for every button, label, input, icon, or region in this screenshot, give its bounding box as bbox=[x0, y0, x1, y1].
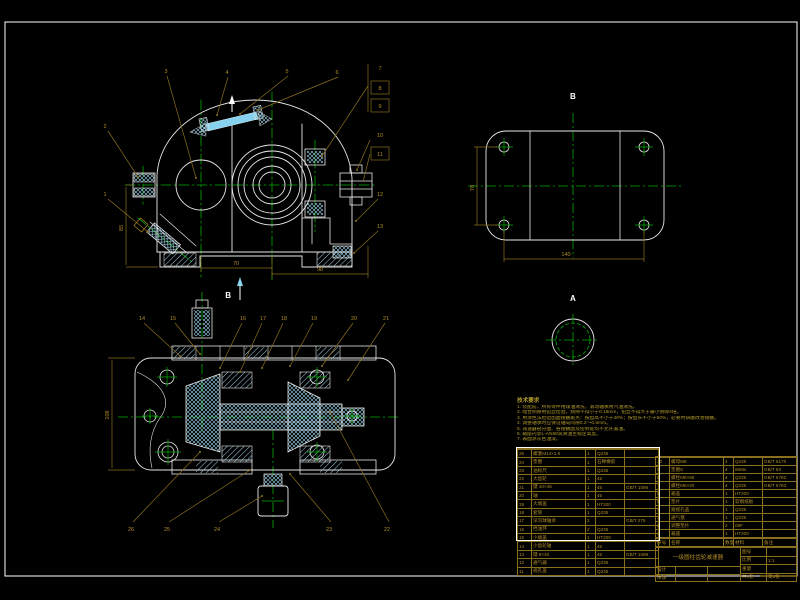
cell-material: 45 bbox=[595, 475, 624, 482]
cell-remark bbox=[624, 559, 658, 566]
sign-value bbox=[708, 575, 740, 582]
cell-name: 箱座 bbox=[669, 530, 723, 537]
cell-qty: 1 bbox=[723, 490, 733, 497]
front-callouts: 1 2 3 4 5 6 7 8 9 10 11 12 13 bbox=[103, 66, 383, 230]
header-no: 序号 bbox=[656, 539, 669, 546]
dim-108: 108 bbox=[105, 410, 111, 419]
cell-name: 视孔盖 bbox=[531, 568, 585, 575]
dim-70: 70 bbox=[233, 261, 239, 267]
table-row: 8 螺栓M8×65 4 Q235 GB/T 5782 bbox=[656, 473, 796, 481]
cell-material: Q235 bbox=[595, 509, 624, 516]
cell-qty: 1 bbox=[585, 475, 595, 482]
cell-name: 调整垫片 bbox=[669, 522, 723, 529]
cell-name: 小齿轮轴 bbox=[531, 542, 585, 549]
callout-2: 2 bbox=[103, 124, 106, 130]
cell-name: 螺栓M8×65 bbox=[669, 474, 723, 481]
cell-remark: GB/T 5783 bbox=[762, 482, 796, 489]
field-value: 1:1 bbox=[767, 557, 796, 565]
cell-remark: GB/T 6170 bbox=[762, 458, 796, 465]
note-line: 7. 表面涂灰色油漆。 bbox=[517, 437, 795, 442]
cell-qty: 1 bbox=[585, 534, 595, 541]
cell-material: 石棉橡胶 bbox=[595, 458, 624, 465]
callout-16: 16 bbox=[240, 316, 246, 322]
table-row: 12 通气器 1 Q235 bbox=[518, 558, 658, 566]
cell-no: 14 bbox=[518, 542, 531, 549]
sign-value bbox=[708, 567, 740, 574]
cell-no: 20 bbox=[518, 492, 531, 499]
cell-material: 08F bbox=[733, 522, 762, 529]
cell-remark bbox=[624, 509, 658, 516]
a-view-label: A bbox=[570, 294, 576, 303]
cell-qty: 1 bbox=[723, 506, 733, 513]
cell-qty: 1 bbox=[585, 568, 595, 575]
cell-remark bbox=[762, 506, 796, 513]
drain-plug bbox=[134, 214, 196, 254]
cell-remark bbox=[762, 490, 796, 497]
cell-remark: GB/T 5782 bbox=[762, 474, 796, 481]
bom-header-row: 序号 名称 数量 材料 备注 bbox=[655, 538, 797, 547]
callout-12: 12 bbox=[377, 192, 383, 198]
callout-26: 26 bbox=[128, 527, 134, 533]
cell-remark bbox=[624, 475, 658, 482]
callout-1: 1 bbox=[103, 192, 106, 198]
callout-19: 19 bbox=[311, 316, 317, 322]
cell-remark bbox=[624, 534, 658, 541]
cell-remark bbox=[624, 492, 658, 499]
cell-remark bbox=[762, 522, 796, 529]
callout-18: 18 bbox=[281, 316, 287, 322]
cell-no: 12 bbox=[518, 559, 531, 566]
table-row: 25 螺塞M14×1.5 1 Q235 bbox=[518, 449, 658, 457]
cell-qty: 2 bbox=[585, 526, 595, 533]
callout-23: 23 bbox=[326, 527, 332, 533]
table-row: 11 视孔盖 1 Q235 bbox=[518, 567, 658, 575]
cell-material: 45 bbox=[595, 542, 624, 549]
cell-no: 3 bbox=[656, 514, 669, 521]
cell-material: 45 bbox=[595, 551, 624, 558]
table-row: 21 键 10×45 1 45 GB/T 1096 bbox=[518, 483, 658, 491]
cell-no: 16 bbox=[518, 526, 531, 533]
field-scale: 比例 1:1 bbox=[741, 557, 796, 566]
cell-name: 轴 bbox=[531, 492, 585, 499]
title-block: 一级圆柱齿轮减速器 设计 审核 图号 比例 1:1 重量 共1张 第1张 bbox=[655, 547, 797, 582]
cell-name: 挡油环 bbox=[531, 526, 585, 533]
cell-qty: 1 bbox=[585, 551, 595, 558]
drawing-title: 一级圆柱齿轮减速器 bbox=[656, 548, 740, 567]
table-row: 24 垫圈 1 石棉橡胶 bbox=[518, 457, 658, 465]
sign-row-design: 设计 bbox=[656, 567, 740, 575]
callout-24: 24 bbox=[214, 527, 220, 533]
sign-value bbox=[676, 567, 708, 574]
field-value bbox=[767, 548, 796, 556]
table-row: 9 垫圈8 4 65Mn GB/T 93 bbox=[656, 465, 796, 473]
callout-17: 17 bbox=[260, 316, 266, 322]
cell-no: 5 bbox=[656, 498, 669, 505]
field-weight: 重量 bbox=[741, 565, 796, 574]
table-row: 15 小端盖 1 HT200 bbox=[518, 533, 658, 541]
callout-9: 9 bbox=[378, 104, 381, 110]
cell-no: 2 bbox=[656, 522, 669, 529]
callout-5: 5 bbox=[285, 69, 288, 75]
cell-no: 7 bbox=[656, 482, 669, 489]
cell-name: 键 8×40 bbox=[531, 551, 585, 558]
cell-no: 1 bbox=[656, 530, 669, 537]
cell-material: Q235 bbox=[733, 506, 762, 513]
callout-8: 8 bbox=[378, 86, 381, 92]
cell-qty: 1 bbox=[723, 530, 733, 537]
table-row: 13 键 8×40 1 45 GB/T 1096 bbox=[518, 550, 658, 558]
dim-140: 140 bbox=[561, 252, 570, 258]
callout-21: 21 bbox=[383, 316, 389, 322]
cell-no: 25 bbox=[518, 450, 531, 457]
cell-material: Q235 bbox=[595, 568, 624, 575]
cell-name: 螺塞M14×1.5 bbox=[531, 450, 585, 457]
callout-15: 15 bbox=[170, 316, 176, 322]
table-row: 17 深沟球轴承 2 GB/T 276 bbox=[518, 516, 658, 524]
cell-qty: 1 bbox=[585, 500, 595, 507]
cad-canvas[interactable]: 1 2 3 4 5 6 7 8 9 10 11 12 13 70 98 85 B bbox=[0, 0, 800, 600]
header-material: 材料 bbox=[733, 539, 762, 546]
callout-3: 3 bbox=[164, 69, 167, 75]
cell-remark bbox=[624, 526, 658, 533]
arrow-b-icon bbox=[237, 277, 243, 286]
table-row: 14 小齿轮轴 1 45 bbox=[518, 541, 658, 549]
table-row: 16 挡油环 2 Q235 bbox=[518, 525, 658, 533]
cell-qty: 2 bbox=[585, 517, 595, 524]
cell-remark: GB/T 1096 bbox=[624, 551, 658, 558]
dim-98: 98 bbox=[317, 267, 323, 273]
view-front bbox=[125, 92, 377, 280]
cell-material: Q235 bbox=[595, 559, 624, 566]
cell-no: 23 bbox=[518, 467, 531, 474]
field-label: 重量 bbox=[741, 565, 767, 573]
cell-material: 软钢纸板 bbox=[733, 498, 762, 505]
cell-material: 45 bbox=[595, 492, 624, 499]
cell-material: Q235 bbox=[733, 474, 762, 481]
cell-name: 窥视孔盖 bbox=[669, 506, 723, 513]
table-row: 2 调整垫片 2 08F bbox=[656, 521, 796, 529]
sign-row-check: 审核 bbox=[656, 575, 740, 582]
cell-name: 垫片 bbox=[669, 498, 723, 505]
callout-10: 10 bbox=[377, 133, 383, 139]
gear-section bbox=[186, 374, 220, 452]
technical-notes: 技术要求 1. 装配前，所有零件用煤油清洗，滚动轴承用汽油清洗。 2. 啮合侧隙… bbox=[517, 396, 795, 443]
cell-remark bbox=[624, 542, 658, 549]
table-row: 1 箱座 1 HT200 bbox=[656, 529, 796, 537]
callout-13: 13 bbox=[377, 224, 383, 230]
table-row: 23 油标尺 1 Q235 bbox=[518, 466, 658, 474]
cell-no: 4 bbox=[656, 506, 669, 513]
callout-22: 22 bbox=[384, 527, 390, 533]
cell-material: HT200 bbox=[733, 530, 762, 537]
cell-qty: 2 bbox=[723, 522, 733, 529]
field-value bbox=[767, 565, 796, 573]
view-plate: 140 78 B bbox=[468, 92, 682, 262]
cell-remark bbox=[624, 450, 658, 457]
cell-material: 65Mn bbox=[733, 466, 762, 473]
cell-material: Q235 bbox=[733, 482, 762, 489]
cell-qty: 1 bbox=[585, 458, 595, 465]
cell-remark: GB/T 1096 bbox=[624, 484, 658, 491]
header-name: 名称 bbox=[669, 539, 723, 546]
table-row: 19 大端盖 1 HT200 bbox=[518, 499, 658, 507]
cell-material: HT200 bbox=[733, 490, 762, 497]
cell-qty: 1 bbox=[723, 514, 733, 521]
header-qty: 数量 bbox=[723, 539, 733, 546]
cell-no: 10 bbox=[656, 458, 669, 465]
cell-remark: GB/T 276 bbox=[624, 517, 658, 524]
cell-material: Q235 bbox=[595, 526, 624, 533]
cell-name: 套筒 bbox=[531, 509, 585, 516]
cell-remark bbox=[624, 467, 658, 474]
field-value: 第1张 bbox=[767, 574, 796, 582]
cell-no: 21 bbox=[518, 484, 531, 491]
cell-qty: 1 bbox=[585, 509, 595, 516]
table-row: 6 箱盖 1 HT200 bbox=[656, 489, 796, 497]
callout-6: 6 bbox=[335, 70, 338, 76]
section-arrow-label: B bbox=[225, 291, 231, 300]
callout-20: 20 bbox=[351, 316, 357, 322]
cell-name: 大端盖 bbox=[531, 500, 585, 507]
cell-name: 小端盖 bbox=[531, 534, 585, 541]
view-a: A bbox=[546, 294, 600, 367]
cell-qty: 4 bbox=[723, 474, 733, 481]
bom-table-right: 10 螺母M8 4 Q235 GB/T 6170 9 垫圈8 4 65Mn GB… bbox=[655, 456, 797, 538]
cell-name: 螺栓M6×20 bbox=[669, 482, 723, 489]
callout-7: 7 bbox=[378, 66, 381, 72]
cell-no: 18 bbox=[518, 509, 531, 516]
dim-78: 78 bbox=[470, 185, 476, 191]
field-sheets: 共1张 第1张 bbox=[741, 574, 796, 582]
cell-remark bbox=[624, 500, 658, 507]
dim-85: 85 bbox=[119, 225, 125, 231]
cell-name: 键 10×45 bbox=[531, 484, 585, 491]
cell-name: 通气器 bbox=[531, 559, 585, 566]
cell-no: 11 bbox=[518, 568, 531, 575]
callout-4: 4 bbox=[225, 70, 228, 76]
sign-label: 审核 bbox=[656, 575, 676, 582]
cell-material: 45 bbox=[595, 484, 624, 491]
cell-no: 8 bbox=[656, 474, 669, 481]
cell-remark bbox=[762, 498, 796, 505]
cell-name: 螺母M8 bbox=[669, 458, 723, 465]
table-row: 3 通气塞 1 Q235 bbox=[656, 513, 796, 521]
cell-remark: GB/T 93 bbox=[762, 466, 796, 473]
cell-qty: 1 bbox=[585, 484, 595, 491]
plate-view-label: B bbox=[570, 92, 576, 101]
cell-name: 垫圈8 bbox=[669, 466, 723, 473]
cell-no: 24 bbox=[518, 458, 531, 465]
table-row: 5 垫片 1 软钢纸板 bbox=[656, 497, 796, 505]
cell-no: 6 bbox=[656, 490, 669, 497]
cell-qty: 1 bbox=[585, 492, 595, 499]
callout-14: 14 bbox=[139, 316, 145, 322]
sign-value bbox=[676, 575, 708, 582]
cell-no: 13 bbox=[518, 551, 531, 558]
cell-name: 通气塞 bbox=[669, 514, 723, 521]
highlighted-bolt bbox=[190, 105, 272, 136]
table-row: 18 套筒 1 Q235 bbox=[518, 508, 658, 516]
notes-title: 技术要求 bbox=[517, 396, 795, 404]
cell-qty: 4 bbox=[723, 458, 733, 465]
cell-name: 箱盖 bbox=[669, 490, 723, 497]
cell-material bbox=[595, 517, 624, 524]
cell-name: 油标尺 bbox=[531, 467, 585, 474]
plate-dim-lines bbox=[474, 147, 644, 262]
cell-remark bbox=[762, 530, 796, 537]
field-label: 图号 bbox=[741, 548, 767, 556]
arrow-a-icon bbox=[229, 95, 235, 104]
field-label: 比例 bbox=[741, 557, 767, 565]
cell-material: HT200 bbox=[595, 534, 624, 541]
cell-material: Q235 bbox=[595, 467, 624, 474]
cell-remark bbox=[762, 514, 796, 521]
leader-dots bbox=[137, 109, 358, 254]
table-row: 4 窥视孔盖 1 Q235 bbox=[656, 505, 796, 513]
cell-remark bbox=[624, 568, 658, 575]
sign-label: 设计 bbox=[656, 567, 676, 574]
cell-qty: 1 bbox=[585, 542, 595, 549]
front-callout-leaders bbox=[108, 64, 389, 253]
cell-material: HT200 bbox=[595, 500, 624, 507]
field-drawing-no: 图号 bbox=[741, 548, 796, 557]
cell-qty: 1 bbox=[723, 498, 733, 505]
table-row: 7 螺栓M6×20 4 Q235 GB/T 5783 bbox=[656, 481, 796, 489]
table-row: 10 螺母M8 4 Q235 GB/T 6170 bbox=[656, 457, 796, 465]
cell-no: 9 bbox=[656, 466, 669, 473]
callout-11: 11 bbox=[377, 152, 383, 158]
cell-no: 22 bbox=[518, 475, 531, 482]
table-row: 22 大齿轮 1 45 bbox=[518, 474, 658, 482]
cell-qty: 1 bbox=[585, 467, 595, 474]
cell-material: Q235 bbox=[595, 450, 624, 457]
callout-25: 25 bbox=[164, 527, 170, 533]
cell-remark bbox=[624, 458, 658, 465]
cell-qty: 1 bbox=[585, 559, 595, 566]
cell-name: 深沟球轴承 bbox=[531, 517, 585, 524]
header-remark: 备注 bbox=[762, 539, 796, 546]
cell-no: 17 bbox=[518, 517, 531, 524]
cell-qty: 4 bbox=[723, 466, 733, 473]
bom-table-left: 25 螺塞M14×1.5 1 Q235 24 垫圈 1 石棉橡胶 23 油标尺 … bbox=[517, 448, 659, 576]
field-label: 共1张 bbox=[741, 574, 767, 582]
table-row: 20 轴 1 45 bbox=[518, 491, 658, 499]
cell-qty: 4 bbox=[723, 482, 733, 489]
cell-material: Q235 bbox=[733, 458, 762, 465]
cell-no: 19 bbox=[518, 500, 531, 507]
cell-name: 大齿轮 bbox=[531, 475, 585, 482]
cell-qty: 1 bbox=[585, 450, 595, 457]
cell-name: 垫圈 bbox=[531, 458, 585, 465]
cell-material: Q235 bbox=[733, 514, 762, 521]
cell-no: 15 bbox=[518, 534, 531, 541]
